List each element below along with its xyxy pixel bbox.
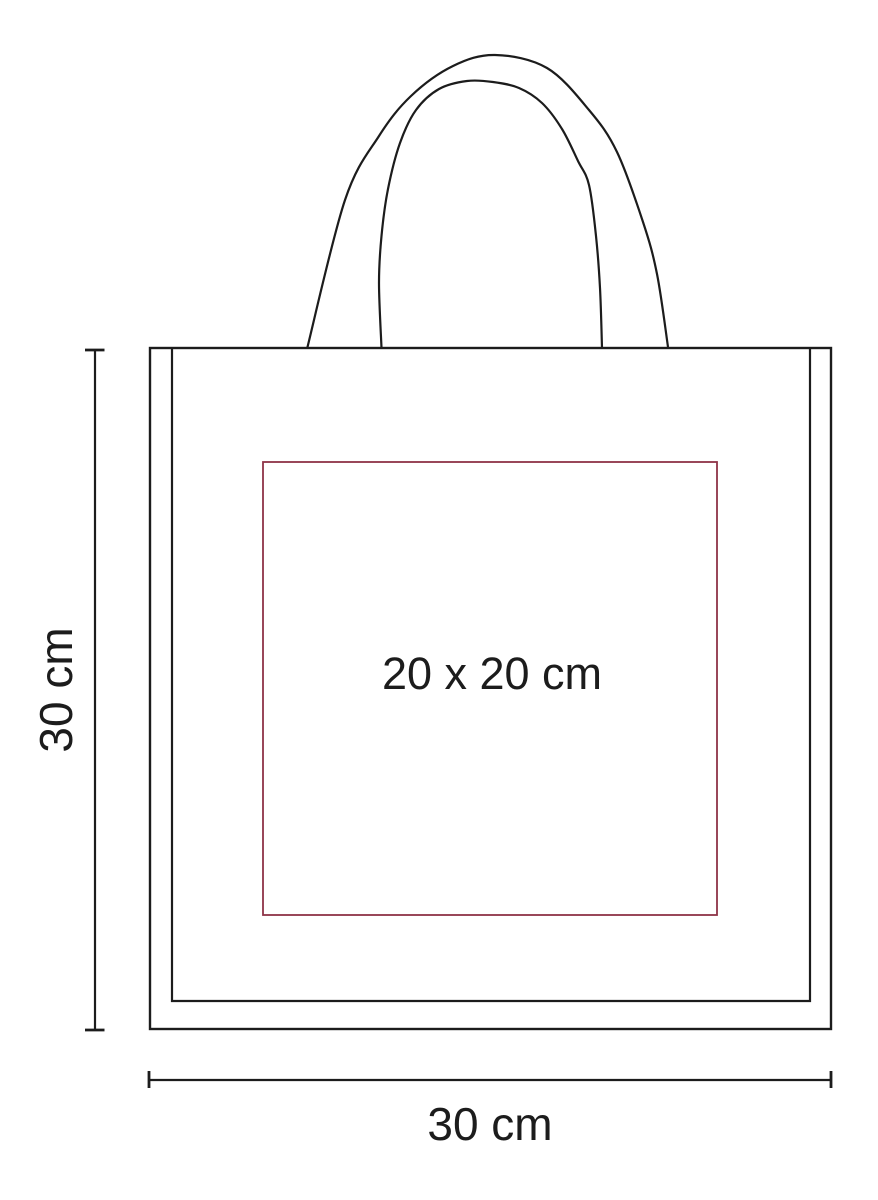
svg-text:30 cm: 30 cm — [30, 627, 82, 752]
svg-text:30 cm: 30 cm — [427, 1098, 552, 1150]
svg-text:20 x 20 cm: 20 x 20 cm — [382, 648, 602, 699]
